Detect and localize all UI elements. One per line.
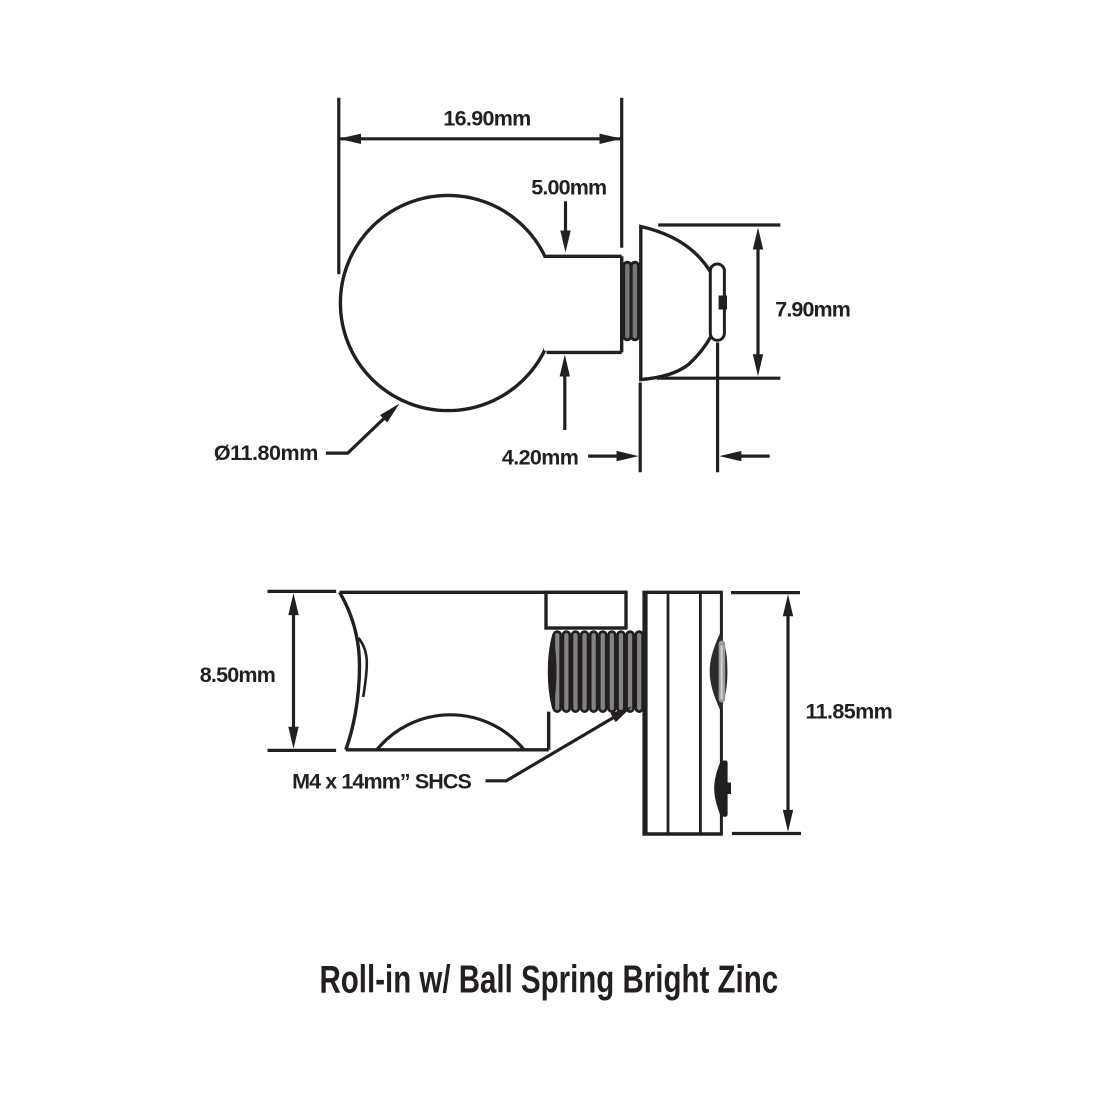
svg-text:4.20mm: 4.20mm [502, 446, 578, 470]
svg-text:Ø11.80mm: Ø11.80mm [214, 441, 318, 465]
svg-text:Roll-in w/ Ball Spring Bright: Roll-in w/ Ball Spring Bright Zinc [320, 959, 779, 1002]
svg-text:11.85mm: 11.85mm [806, 699, 893, 723]
svg-text:M4 x 14mm” SHCS: M4 x 14mm” SHCS [292, 769, 471, 793]
svg-text:16.90mm: 16.90mm [443, 106, 530, 130]
svg-text:8.50mm: 8.50mm [200, 663, 275, 687]
svg-text:7.90mm: 7.90mm [775, 298, 850, 322]
svg-text:5.00mm: 5.00mm [531, 176, 606, 200]
